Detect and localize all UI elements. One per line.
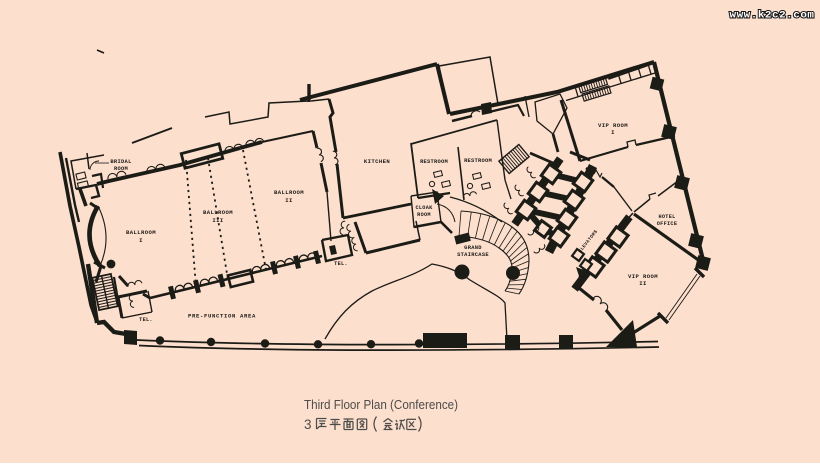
svg-text:CLOAK: CLOAK — [415, 205, 433, 211]
svg-text:VIP ROOM: VIP ROOM — [598, 122, 628, 129]
svg-text:II: II — [639, 280, 647, 287]
svg-text:OFFICE: OFFICE — [657, 221, 677, 227]
svg-text:KITCHEN: KITCHEN — [364, 158, 390, 165]
svg-text:RESTROOM: RESTROOM — [420, 159, 448, 165]
svg-text:III: III — [212, 217, 223, 224]
svg-text:BALLROOM: BALLROOM — [203, 209, 233, 216]
svg-text:BRIDAL: BRIDAL — [110, 159, 131, 165]
svg-text:TEL.: TEL. — [334, 261, 348, 267]
svg-text:3: 3 — [304, 417, 312, 432]
svg-text:STAIRCASE: STAIRCASE — [457, 252, 489, 258]
svg-text:RESTROOM: RESTROOM — [464, 158, 492, 164]
svg-text:Third Floor Plan (Conference): Third Floor Plan (Conference) — [304, 397, 458, 412]
svg-text:I: I — [139, 237, 143, 244]
svg-text:TEL.: TEL. — [139, 317, 153, 323]
svg-text:BALLROOM: BALLROOM — [274, 189, 304, 196]
svg-text:VIP ROOM: VIP ROOM — [628, 273, 658, 280]
svg-text:www.k2c2.com: www.k2c2.com — [730, 10, 815, 22]
svg-text:I: I — [611, 129, 615, 136]
svg-text:ROOM: ROOM — [417, 212, 431, 218]
svg-text:II: II — [285, 197, 293, 204]
svg-text:PRE-FUNCTION AREA: PRE-FUNCTION AREA — [188, 313, 256, 320]
svg-text:GRAND: GRAND — [464, 245, 482, 251]
svg-text:BALLROOM: BALLROOM — [126, 229, 156, 236]
svg-text:HOTEL: HOTEL — [658, 214, 675, 220]
